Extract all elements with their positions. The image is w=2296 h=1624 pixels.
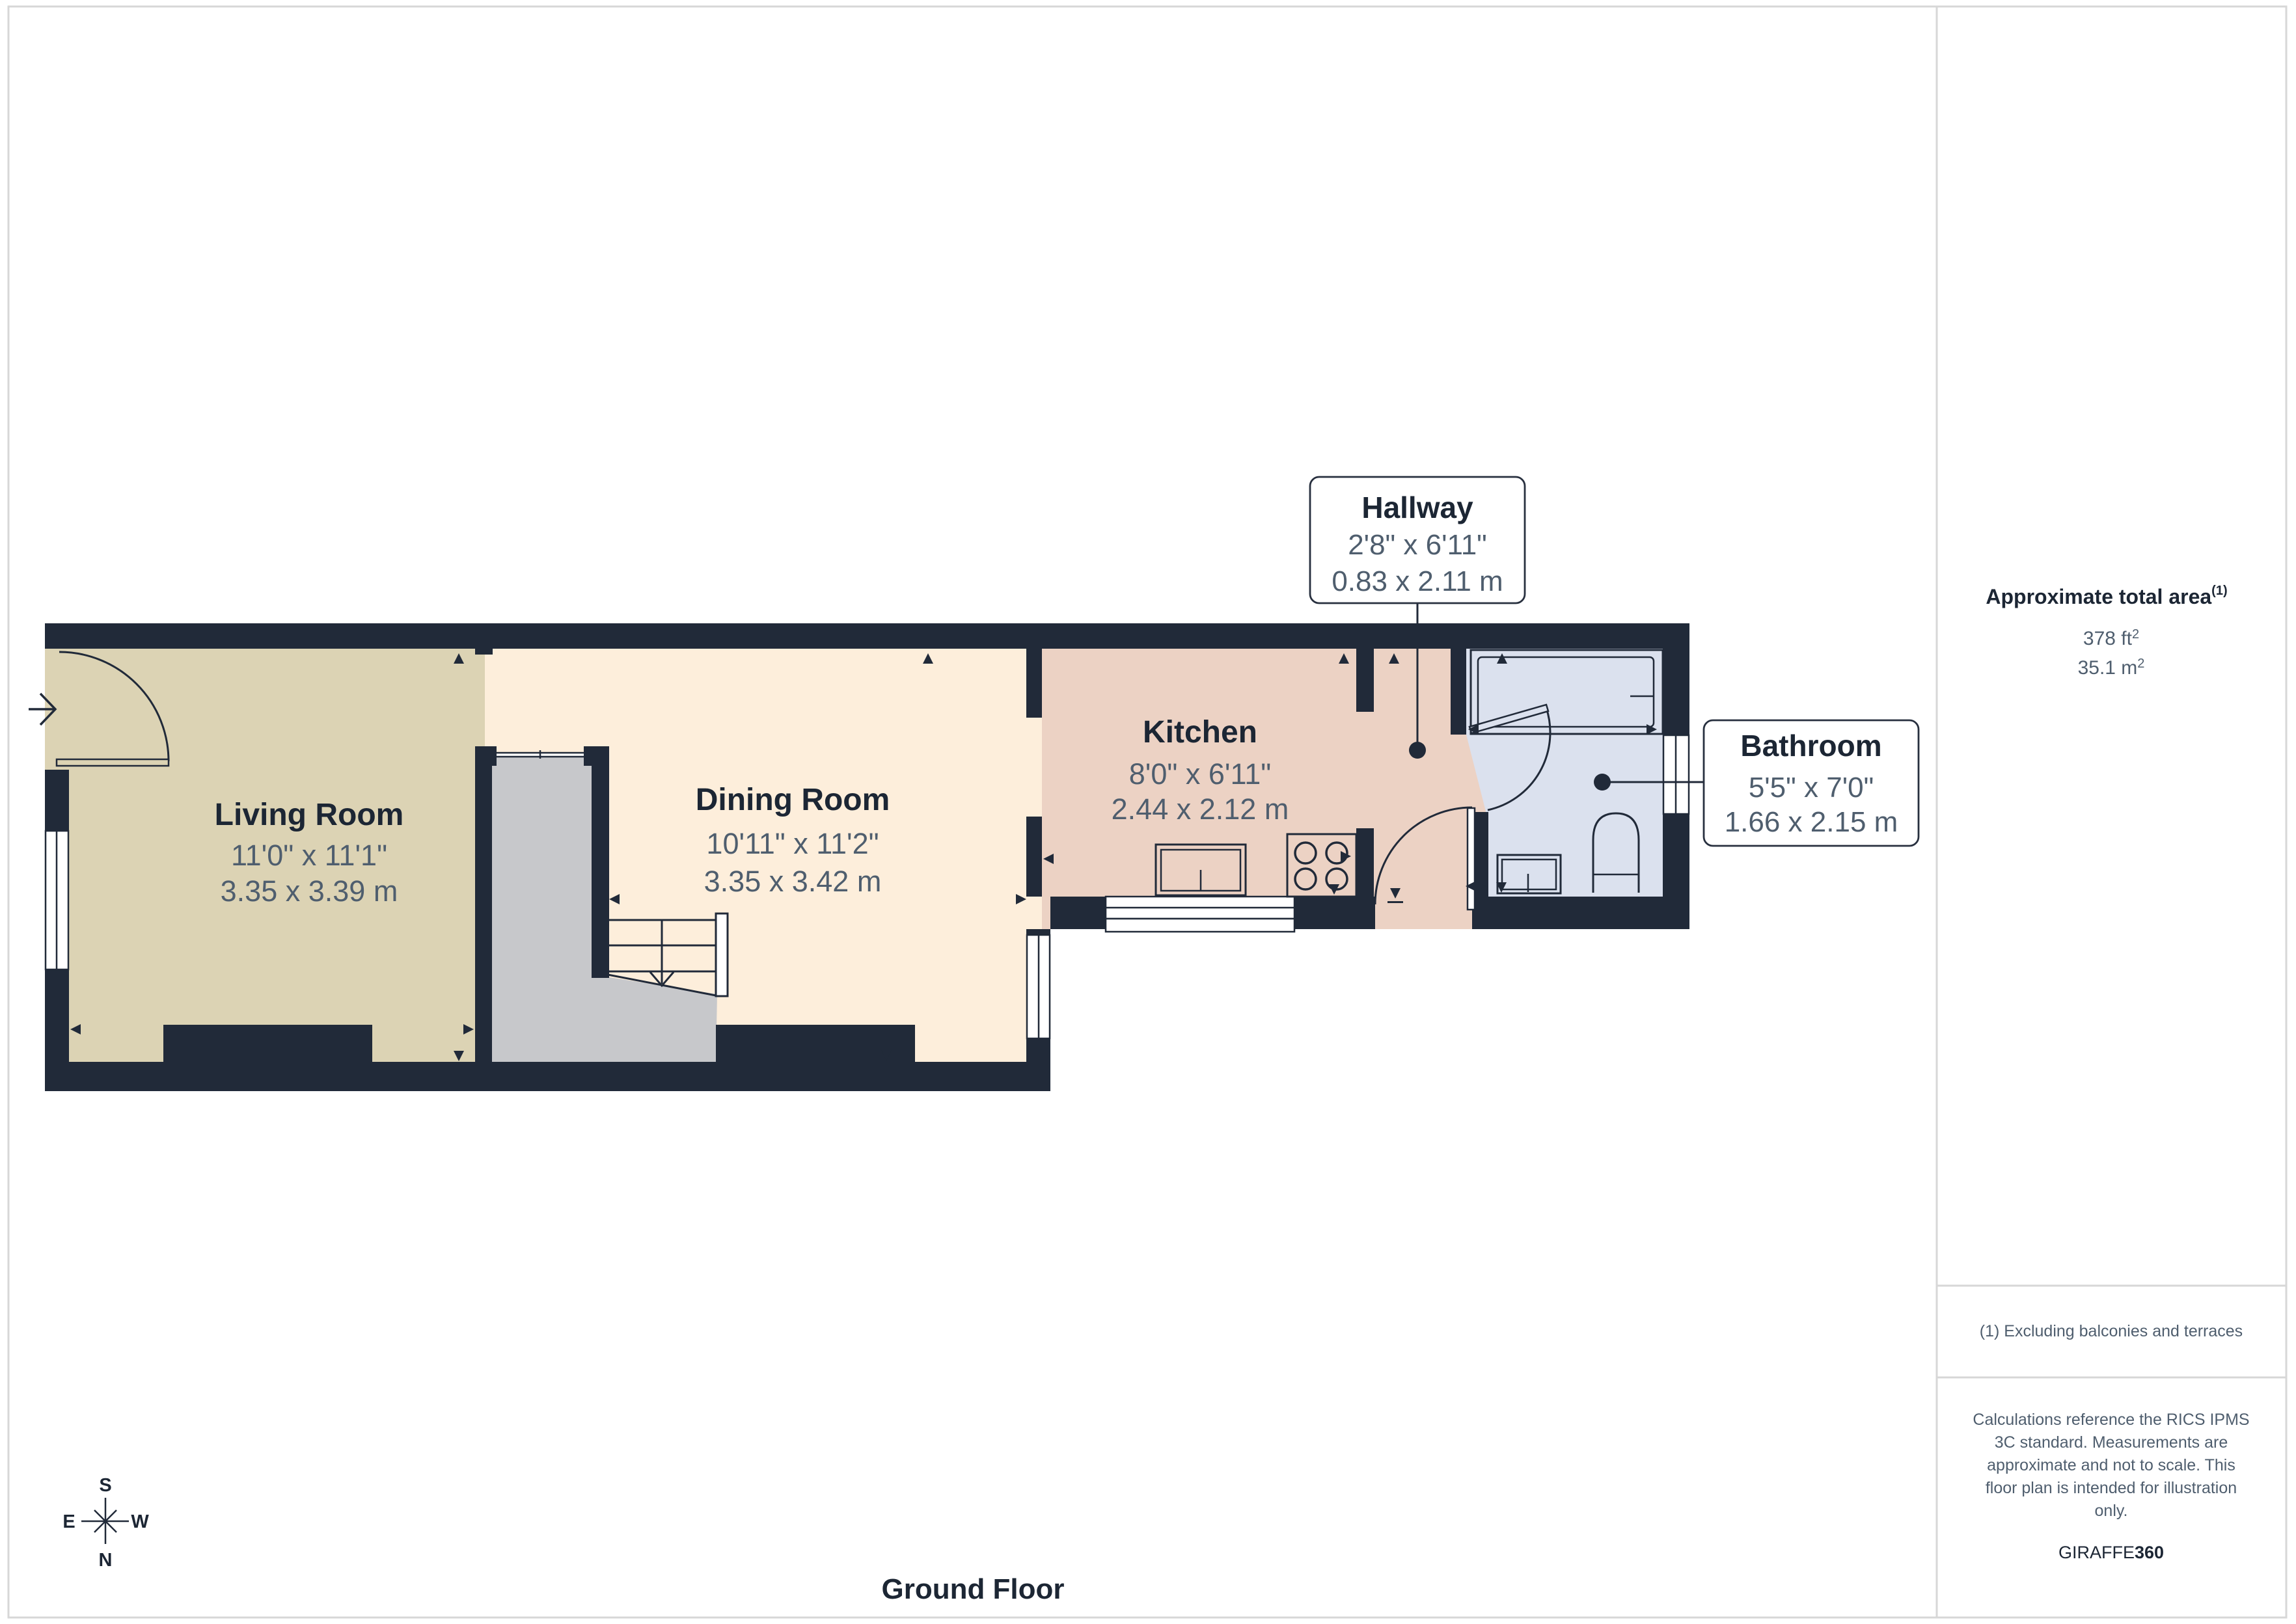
- svg-text:Bathroom: Bathroom: [1740, 729, 1881, 763]
- svg-text:0.83 x 2.11 m: 0.83 x 2.11 m: [1332, 565, 1503, 597]
- svg-text:W: W: [131, 1511, 149, 1532]
- svg-text:2.44 x 2.12 m: 2.44 x 2.12 m: [1112, 792, 1289, 826]
- svg-text:only.: only.: [2095, 1502, 2128, 1520]
- svg-text:Calculations reference the RIC: Calculations reference the RICS IPMS: [1973, 1411, 2249, 1429]
- svg-text:Approximate total area(1): Approximate total area(1): [1986, 584, 2227, 608]
- svg-text:1.66 x 2.15 m: 1.66 x 2.15 m: [1725, 806, 1898, 838]
- svg-text:S: S: [99, 1475, 111, 1496]
- svg-text:378 ft2: 378 ft2: [2083, 627, 2139, 649]
- svg-text:2'8" x 6'11": 2'8" x 6'11": [1348, 529, 1487, 561]
- svg-text:(1) Excluding balconies and te: (1) Excluding balconies and terraces: [1980, 1322, 2243, 1340]
- svg-text:Living Room: Living Room: [215, 798, 404, 832]
- svg-text:Kitchen: Kitchen: [1143, 715, 1257, 750]
- svg-text:3C standard. Measurements are: 3C standard. Measurements are: [1995, 1433, 2228, 1452]
- svg-text:3.35 x 3.39 m: 3.35 x 3.39 m: [221, 874, 398, 908]
- svg-text:Hallway: Hallway: [1361, 491, 1473, 524]
- svg-text:GIRAFFE360: GIRAFFE360: [2058, 1543, 2164, 1562]
- svg-text:Dining Room: Dining Room: [696, 783, 890, 817]
- svg-text:10'11" x 11'2": 10'11" x 11'2": [706, 827, 879, 860]
- svg-text:35.1 m2: 35.1 m2: [2078, 656, 2145, 679]
- svg-text:11'0" x 11'1": 11'0" x 11'1": [231, 839, 387, 872]
- svg-text:3.35 x 3.42 m: 3.35 x 3.42 m: [704, 865, 882, 898]
- svg-text:8'0" x 6'11": 8'0" x 6'11": [1129, 757, 1271, 791]
- svg-text:E: E: [62, 1511, 75, 1532]
- svg-text:N: N: [99, 1550, 113, 1571]
- svg-text:5'5" x 7'0": 5'5" x 7'0": [1749, 772, 1874, 804]
- svg-text:approximate and not to scale.: approximate and not to scale. This: [1987, 1456, 2235, 1474]
- svg-text:Ground Floor: Ground Floor: [881, 1573, 1064, 1605]
- svg-text:floor plan is intended for ill: floor plan is intended for illustration: [1986, 1479, 2237, 1497]
